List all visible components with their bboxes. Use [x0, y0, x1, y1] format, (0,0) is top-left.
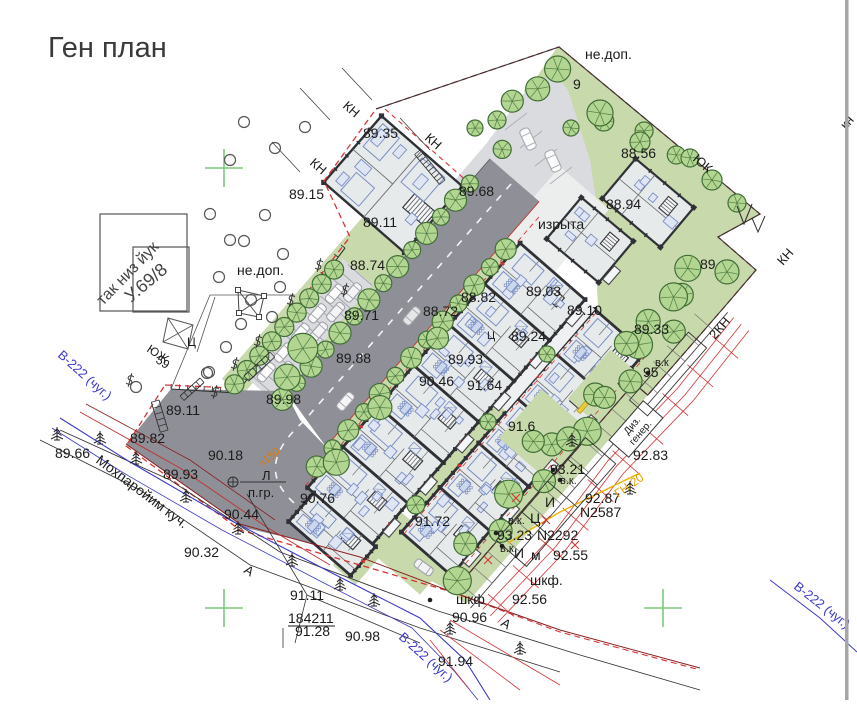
svg-text:89.11: 89.11: [166, 402, 200, 418]
svg-text:184211: 184211: [288, 610, 334, 626]
svg-text:м: м: [531, 547, 541, 563]
svg-text:89.11: 89.11: [363, 214, 397, 230]
svg-text:89.10: 89.10: [567, 302, 602, 318]
svg-text:90.32: 90.32: [184, 544, 219, 560]
svg-text:89.35: 89.35: [363, 125, 398, 141]
svg-text:91.11: 91.11: [290, 587, 324, 603]
svg-text:N2587: N2587: [580, 504, 621, 520]
svg-text:88.94: 88.94: [606, 196, 641, 212]
svg-text:90.46: 90.46: [419, 373, 454, 389]
svg-text:92.56: 92.56: [512, 591, 547, 607]
svg-text:89.71: 89.71: [344, 307, 379, 323]
svg-text:91.6: 91.6: [508, 418, 535, 434]
svg-text:88.74: 88.74: [350, 257, 385, 273]
svg-text:90.18: 90.18: [208, 447, 243, 463]
svg-text:90.96: 90.96: [452, 609, 487, 625]
svg-text:И: И: [514, 545, 524, 561]
svg-text:Ц: Ц: [530, 510, 541, 526]
svg-text:89.98: 89.98: [266, 391, 301, 407]
svg-text:88.82: 88.82: [461, 289, 496, 305]
svg-text:не.доп.: не.доп.: [585, 46, 632, 62]
svg-text:Ц: Ц: [187, 335, 196, 349]
svg-text:89.68: 89.68: [459, 183, 494, 199]
svg-text:в.к.: в.к.: [560, 475, 577, 487]
svg-text:изрыта: изрыта: [538, 216, 584, 232]
svg-text:И: И: [545, 494, 555, 510]
svg-text:91.64: 91.64: [467, 377, 502, 393]
svg-text:90.76: 90.76: [300, 490, 335, 506]
svg-text:90.44: 90.44: [224, 506, 259, 522]
svg-text:в.к: в.к: [655, 357, 669, 369]
svg-text:Ген план: Ген план: [48, 32, 167, 64]
svg-text:п.гр.: п.гр.: [248, 485, 274, 500]
svg-text:89.88: 89.88: [336, 350, 371, 366]
svg-text:не.доп.: не.доп.: [237, 262, 284, 278]
svg-text:Ц: Ц: [487, 330, 495, 342]
svg-text:92.55: 92.55: [553, 547, 588, 563]
svg-text:89.24: 89.24: [511, 328, 546, 344]
svg-text:89.93: 89.93: [448, 351, 483, 367]
svg-text:91.72: 91.72: [415, 513, 450, 529]
svg-text:88.56: 88.56: [621, 145, 656, 161]
svg-text:шкф.: шкф.: [530, 572, 563, 588]
svg-text:N2292: N2292: [537, 527, 578, 543]
svg-text:88.72: 88.72: [423, 303, 458, 319]
svg-text:89.93: 89.93: [163, 466, 198, 482]
svg-text:шкф: шкф: [456, 591, 485, 607]
svg-text:89.15: 89.15: [289, 186, 324, 202]
svg-text:в.к.: в.к.: [508, 515, 525, 527]
svg-text:90.98: 90.98: [345, 628, 380, 644]
svg-text:89: 89: [700, 256, 716, 272]
svg-text:89.66: 89.66: [55, 445, 90, 461]
svg-text:89.33: 89.33: [634, 321, 669, 337]
svg-text:92.83: 92.83: [633, 447, 668, 463]
svg-text:89.03: 89.03: [526, 283, 561, 299]
svg-text:9: 9: [573, 76, 581, 92]
svg-text:93.23: 93.23: [497, 527, 532, 543]
svg-text:89.82: 89.82: [130, 430, 165, 446]
